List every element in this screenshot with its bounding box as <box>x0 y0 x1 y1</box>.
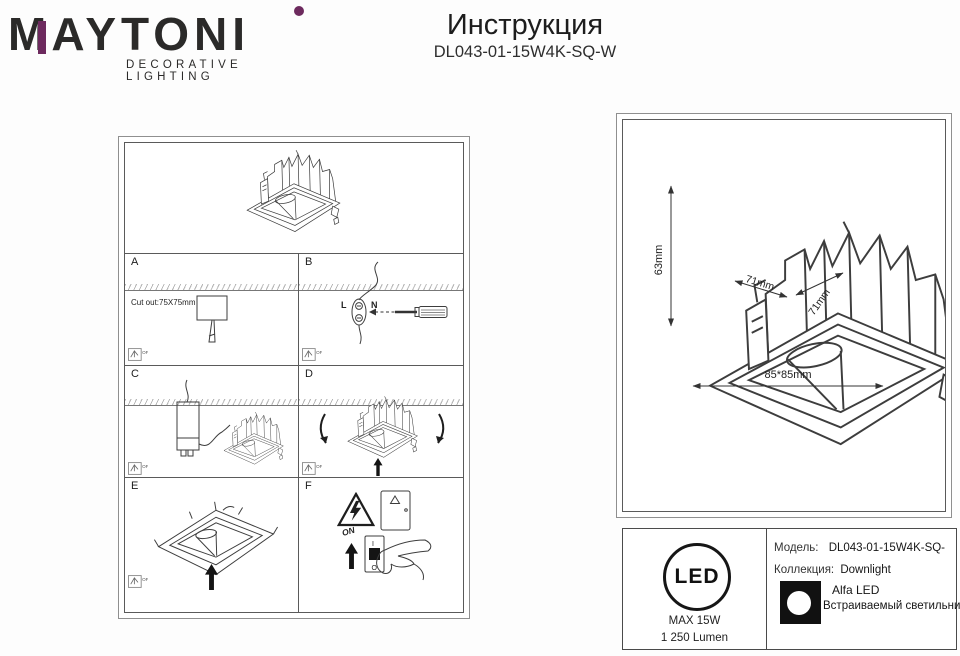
step-a-label: A <box>131 256 138 268</box>
cutout-drawing <box>185 290 245 350</box>
title-block: Инструкция DL043-01-15W4K-SQ-W <box>375 8 675 62</box>
power-off-icon <box>302 461 322 476</box>
led-badge-icon: LED <box>663 543 731 611</box>
step-e-label: E <box>131 480 138 492</box>
fuse-box-icon <box>381 491 410 530</box>
product-isometric-drawing <box>125 143 463 253</box>
hand-icon <box>377 540 431 580</box>
document-title: Инструкция <box>375 8 675 42</box>
brand-m-accent <box>38 21 46 54</box>
led-badge-cell: LED MAX 15W 1 250 Lumen <box>623 529 767 649</box>
installation-steps-box: A Cut out:75X75mm B <box>118 136 470 619</box>
power-off-icon <box>128 347 148 362</box>
wall-switch-icon: I O <box>365 536 384 572</box>
collection-row: Коллекция: Downlight <box>774 564 891 576</box>
fixture-type: Встраиваемый светильник <box>823 600 960 612</box>
brand-wordmark: MAYTONI <box>8 10 308 58</box>
dim-inner-a-label: 71mm <box>744 273 776 293</box>
switch-on-mark: I <box>372 541 374 548</box>
model-row: Модель: DL043-01-15W4K-SQ- <box>774 542 945 554</box>
wire-l-label: L <box>341 300 347 310</box>
lumens-text: 1 250 Lumen <box>623 632 766 644</box>
downlight-type-icon <box>780 581 821 624</box>
led-badge-text: LED <box>675 565 720 589</box>
step-panel-a: A Cut out:75X75mm <box>125 253 298 366</box>
wire-n-label: N <box>371 300 378 310</box>
brand-tagline: DECORATIVE LIGHTING <box>126 59 308 83</box>
brand-logo: MAYTONI DECORATIVE LIGHTING <box>8 10 308 83</box>
brand-i-dot <box>294 6 304 16</box>
step-panel-e: E <box>125 477 298 613</box>
model-label: Модель: <box>774 542 818 554</box>
max-power-text: MAX 15W <box>623 615 766 627</box>
luminaire-mini-drawing <box>218 412 290 474</box>
product-info-cell: Модель: DL043-01-15W4K-SQ- Коллекция: Do… <box>766 529 956 649</box>
step-panel-b: B L N <box>298 253 463 366</box>
collection-value: Downlight <box>840 564 891 576</box>
dimension-drawing: 63mm 85*85mm 71mm 71mm <box>623 120 945 511</box>
power-off-icon <box>302 347 322 362</box>
wiring-drawing: L N <box>299 254 463 366</box>
installation-steps-inner: A Cut out:75X75mm B <box>124 142 464 613</box>
series-name: Alfa LED <box>832 583 879 597</box>
step-panel-c: C <box>125 365 298 478</box>
power-off-icon <box>128 461 148 476</box>
spec-table: LED MAX 15W 1 250 Lumen Модель: DL043-01… <box>622 528 957 650</box>
step-panel-f: F I O <box>298 477 463 613</box>
downlight-aperture <box>787 591 811 615</box>
push-up-arrow <box>373 458 383 476</box>
power-on-drawing: I O ON <box>299 478 463 613</box>
screwdriver-icon <box>369 307 447 318</box>
dimensions-box: 63mm 85*85mm 71mm 71mm <box>616 113 952 518</box>
instruction-sheet: OFF MAYTONI DECORATIVE LIGHTING Инструкц… <box>0 0 960 656</box>
dim-overall-label: 85*85mm <box>764 369 811 381</box>
on-label: ON <box>341 525 357 538</box>
dim-height-label: 63mm <box>653 245 665 276</box>
step-panel-d: D <box>298 365 463 478</box>
power-off-icon <box>128 574 148 589</box>
power-on-arrow <box>345 540 358 572</box>
collection-label: Коллекция: <box>774 564 834 576</box>
document-model-code: DL043-01-15W4K-SQ-W <box>375 43 675 62</box>
model-value: DL043-01-15W4K-SQ- <box>829 542 945 554</box>
push-up-arrow <box>205 564 218 590</box>
product-drawing-svg <box>238 150 350 247</box>
dimensions-inner: 63mm 85*85mm 71mm 71mm <box>622 119 946 512</box>
